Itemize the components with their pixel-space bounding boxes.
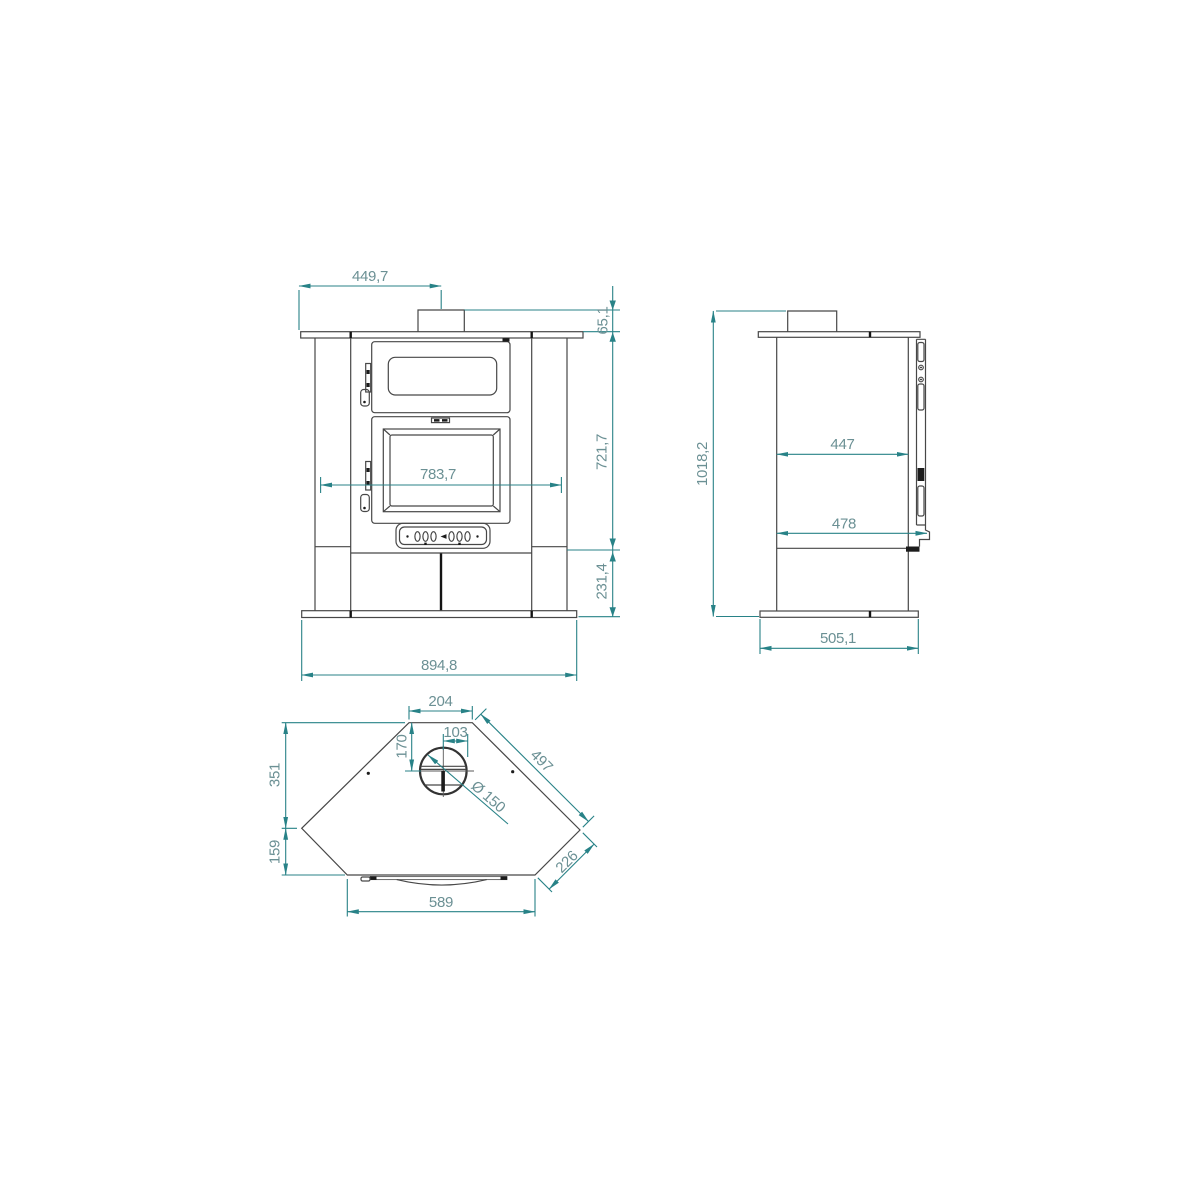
side-view: 1018,2 447 478 505,1 bbox=[694, 311, 930, 654]
dim-front-inner-width: 783,7 bbox=[420, 466, 456, 483]
dim-top-left-depth-upper: 351 bbox=[267, 763, 284, 787]
control-knobs bbox=[406, 532, 478, 544]
dim-top-corner-cut: 226 bbox=[552, 847, 581, 876]
dim-top-flue-offset-right: 103 bbox=[443, 724, 467, 741]
dim-top-front-width: 589 bbox=[429, 894, 453, 911]
side-dimensions: 1018,2 447 478 505,1 bbox=[694, 311, 927, 654]
dim-top-flue-diameter: Ø 150 bbox=[468, 778, 509, 817]
oven-door bbox=[372, 342, 510, 413]
top-dimensions: 204 170 103 497 Ø 150 351 159 226 589 bbox=[267, 693, 597, 917]
hinge-strip-foot-base bbox=[906, 547, 920, 552]
air-vent-slot-right bbox=[442, 419, 448, 422]
side-chimney-collar bbox=[788, 311, 837, 332]
dim-front-collar-height: 65,1 bbox=[594, 307, 611, 335]
top-door-edge bbox=[361, 876, 507, 885]
dim-front-body-height: 721,7 bbox=[593, 434, 610, 470]
dim-top-side-panel-length: 497 bbox=[527, 747, 556, 776]
side-ext-lines bbox=[716, 311, 918, 654]
door-handle-top bbox=[397, 880, 487, 885]
door-hinge-stub bbox=[361, 877, 370, 881]
panel-mark-right bbox=[511, 770, 514, 773]
hinge-strip-foot bbox=[920, 525, 930, 547]
base-plate bbox=[302, 611, 577, 618]
front-dimensions: 449,7 65,1 721,7 783,7 231,4 894,8 bbox=[299, 268, 620, 681]
door-hinge-strip bbox=[906, 339, 930, 551]
dim-side-base-depth: 505,1 bbox=[820, 630, 856, 647]
top-outline bbox=[302, 723, 580, 875]
top-plate-joint-ticks bbox=[351, 332, 532, 338]
control-panel bbox=[396, 523, 490, 548]
chimney-collar bbox=[418, 310, 464, 332]
dim-top-flue-panel-width: 204 bbox=[428, 693, 452, 710]
dim-front-base-height: 231,4 bbox=[593, 563, 610, 599]
stove-technical-drawing: 449,7 65,1 721,7 783,7 231,4 894,8 bbox=[0, 0, 1200, 1200]
dim-side-depth-lower: 478 bbox=[832, 516, 856, 533]
technical-drawing-canvas: 449,7 65,1 721,7 783,7 231,4 894,8 bbox=[0, 0, 1200, 1200]
base-plate-joint-ticks bbox=[351, 611, 532, 618]
dim-front-chimney-offset: 449,7 bbox=[352, 268, 388, 285]
front-view: 449,7 65,1 721,7 783,7 231,4 894,8 bbox=[299, 268, 620, 681]
flue-damper-handle bbox=[441, 771, 445, 792]
knob-pointer bbox=[441, 534, 447, 539]
dim-side-depth-upper: 447 bbox=[830, 436, 854, 453]
air-vent-slot-left bbox=[434, 419, 440, 422]
top-plate bbox=[301, 332, 583, 338]
door-hinges bbox=[361, 364, 371, 512]
oven-door-latch-detail bbox=[503, 338, 510, 341]
dim-side-overall-height: 1018,2 bbox=[694, 442, 711, 486]
oven-door-window bbox=[388, 357, 496, 395]
side-top-plate bbox=[758, 332, 920, 338]
top-view: 204 170 103 497 Ø 150 351 159 226 589 bbox=[267, 693, 597, 917]
flue-outlet bbox=[413, 746, 474, 798]
side-base-plate bbox=[760, 611, 918, 617]
dim-top-flue-offset-depth: 170 bbox=[393, 734, 410, 758]
side-body bbox=[777, 337, 909, 611]
dim-top-left-depth-lower: 159 bbox=[267, 840, 284, 864]
dim-front-overall-width: 894,8 bbox=[421, 657, 457, 674]
panel-mark-left bbox=[367, 772, 370, 775]
